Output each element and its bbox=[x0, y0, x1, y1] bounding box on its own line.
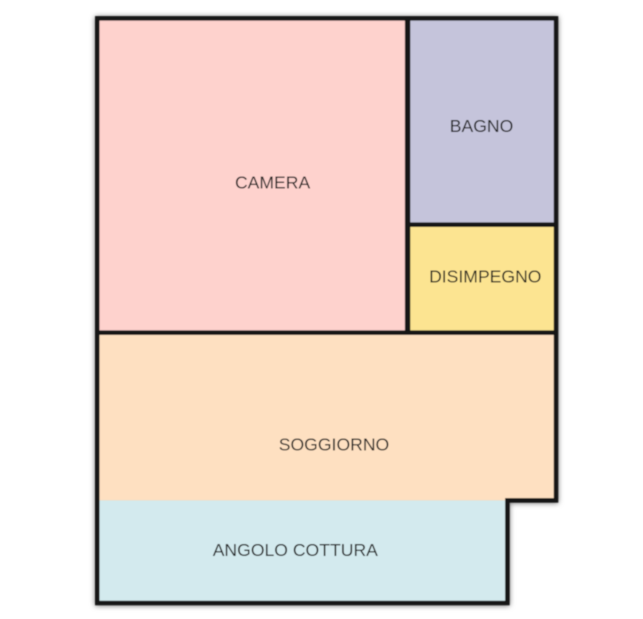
svg-text:DISIMPEGNO: DISIMPEGNO bbox=[429, 267, 541, 287]
svg-text:CAMERA: CAMERA bbox=[235, 173, 311, 193]
svg-text:BAGNO: BAGNO bbox=[450, 116, 514, 136]
svg-text:ANGOLO COTTURA: ANGOLO COTTURA bbox=[213, 540, 378, 560]
svg-text:SOGGIORNO: SOGGIORNO bbox=[279, 435, 389, 455]
